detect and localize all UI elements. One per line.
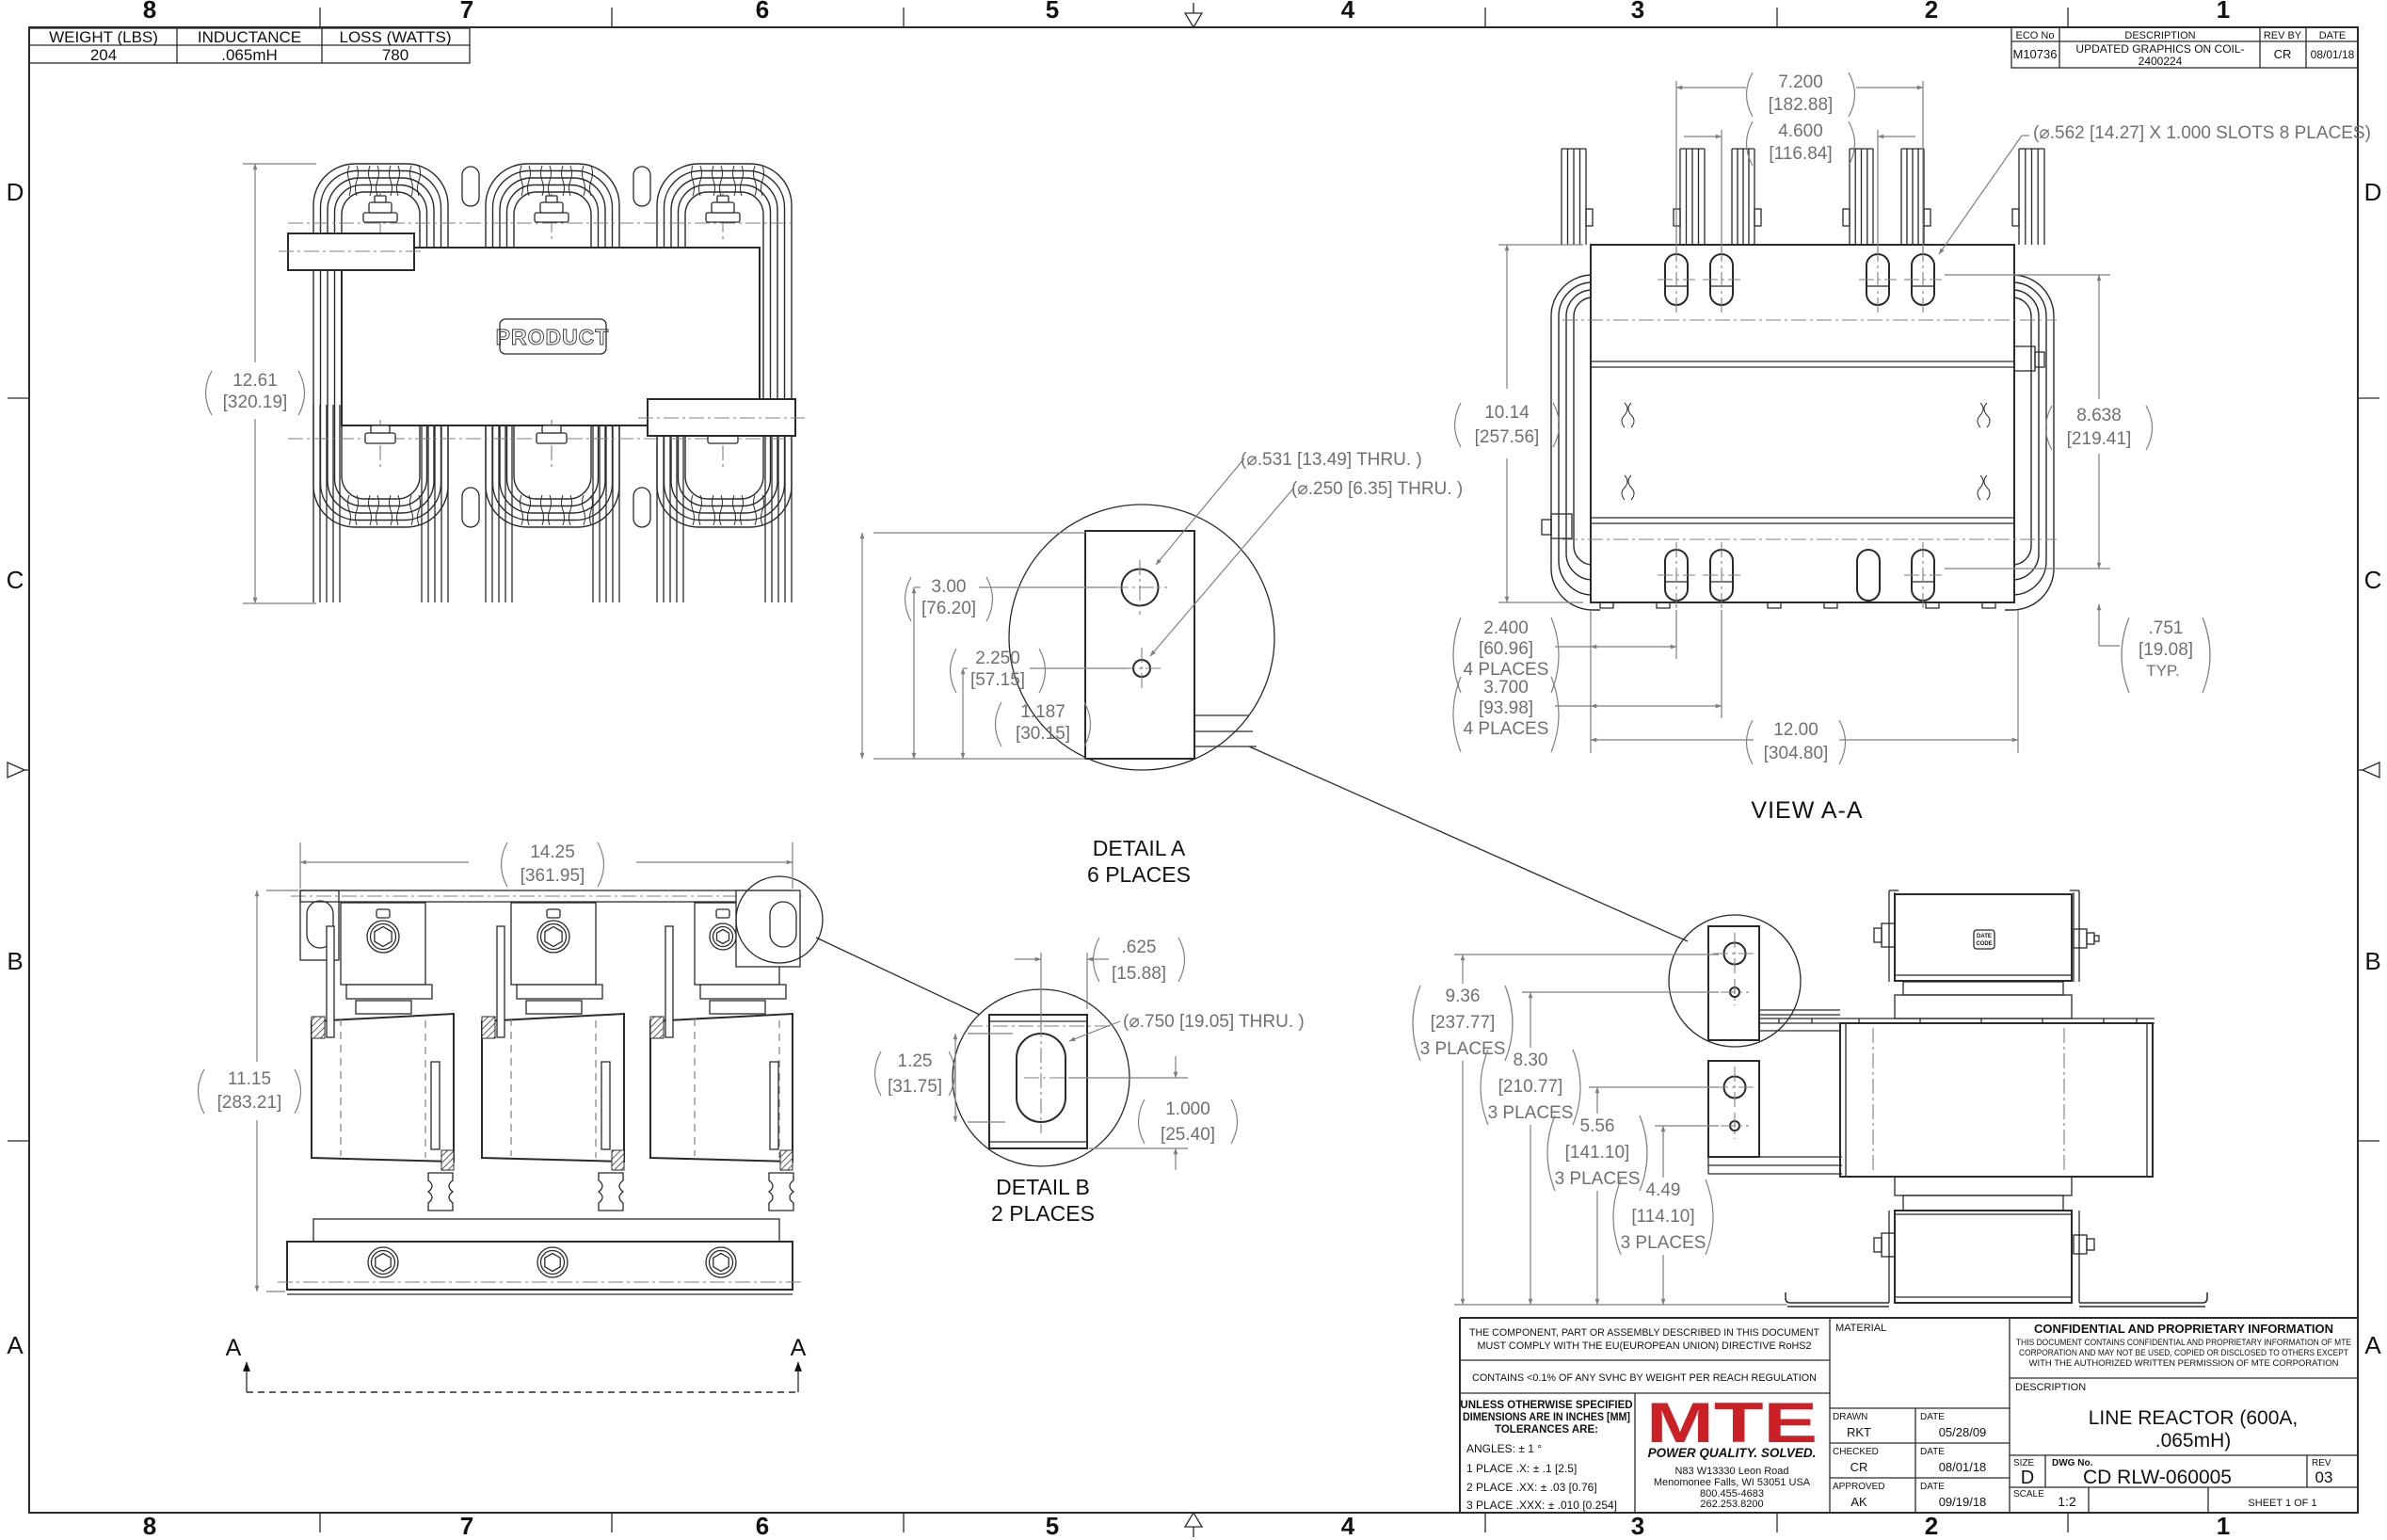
svg-text:09/19/18: 09/19/18 xyxy=(1939,1495,1987,1509)
svg-text:[76.20]: [76.20] xyxy=(921,599,976,618)
svg-text:ECO No: ECO No xyxy=(2016,30,2055,41)
svg-text:[237.77]: [237.77] xyxy=(1431,1013,1496,1033)
svg-text:(⌀.531 [13.49] THRU. ): (⌀.531 [13.49] THRU. ) xyxy=(1241,450,1422,470)
svg-text:CORPORATION AND MAY NOT BE USE: CORPORATION AND MAY NOT BE USED, COPIED … xyxy=(2019,1348,2348,1358)
svg-text:3: 3 xyxy=(1631,0,1644,24)
svg-text:N83 W13330 Leon Road: N83 W13330 Leon Road xyxy=(1674,1466,1788,1477)
svg-text:7.200: 7.200 xyxy=(1778,72,1823,92)
svg-text:[257.56]: [257.56] xyxy=(1475,427,1540,447)
svg-text:.625: .625 xyxy=(1122,938,1157,957)
svg-text:UNLESS OTHERWISE SPECIFIED: UNLESS OTHERWISE SPECIFIED xyxy=(1460,1400,1632,1411)
svg-text:AK: AK xyxy=(1850,1495,1867,1509)
svg-text:[219.41]: [219.41] xyxy=(2067,429,2132,449)
svg-text:[116.84]: [116.84] xyxy=(1769,144,1832,164)
svg-text:1 PLACE .X: ± .1 [2.5]: 1 PLACE .X: ± .1 [2.5] xyxy=(1466,1462,1577,1475)
svg-text:D: D xyxy=(7,178,24,206)
svg-text:DATE: DATE xyxy=(1920,1482,1945,1492)
svg-text:REV: REV xyxy=(2312,1458,2331,1468)
svg-text:1: 1 xyxy=(2217,0,2230,24)
svg-text:4: 4 xyxy=(1341,0,1355,24)
svg-text:8.30: 8.30 xyxy=(1514,1051,1548,1070)
svg-text:4 PLACES: 4 PLACES xyxy=(1464,719,1549,739)
svg-text:CR: CR xyxy=(1850,1460,1868,1474)
svg-text:6: 6 xyxy=(756,0,769,24)
svg-text:ANGLES: ± 1 °: ANGLES: ± 1 ° xyxy=(1466,1442,1542,1455)
svg-text:DESCRIPTION: DESCRIPTION xyxy=(2015,1382,2086,1393)
svg-text:A: A xyxy=(7,1331,24,1359)
svg-text:A: A xyxy=(226,1335,242,1361)
svg-text:LINE REACTOR (600A,: LINE REACTOR (600A, xyxy=(2089,1407,2299,1429)
svg-text:3 PLACE .XXX: ± .010 [0.254]: 3 PLACE .XXX: ± .010 [0.254] xyxy=(1466,1499,1617,1512)
svg-text:[93.98]: [93.98] xyxy=(1479,698,1533,718)
svg-text:1.000: 1.000 xyxy=(1165,1099,1210,1119)
svg-text:(⌀.562 [14.27] X 1.000 SLOTS: (⌀.562 [14.27] X 1.000 SLOTS 8 PLACES) xyxy=(2033,123,2371,143)
svg-text:[361.95]: [361.95] xyxy=(521,866,585,886)
svg-text:CR: CR xyxy=(2274,47,2292,61)
svg-text:05/28/09: 05/28/09 xyxy=(1939,1425,1987,1439)
svg-text:780: 780 xyxy=(382,46,409,64)
svg-text:4 PLACES: 4 PLACES xyxy=(1464,660,1549,680)
svg-text:M10736: M10736 xyxy=(2013,47,2058,61)
svg-text:DESCRIPTION: DESCRIPTION xyxy=(2124,30,2195,41)
svg-text:D: D xyxy=(2021,1468,2034,1488)
svg-text:7: 7 xyxy=(460,0,473,24)
svg-text:[60.96]: [60.96] xyxy=(1479,639,1533,659)
svg-text:DIMENSIONS ARE IN INCHES [MM]: DIMENSIONS ARE IN INCHES [MM] xyxy=(1463,1412,1630,1423)
svg-text:[30.15]: [30.15] xyxy=(1016,724,1070,744)
svg-text:THIS DOCUMENT CONTAINS CONFIDE: THIS DOCUMENT CONTAINS CONFIDENTIAL AND … xyxy=(2016,1338,2351,1348)
svg-text:A: A xyxy=(791,1335,807,1361)
svg-text:POWER QUALITY. SOLVED.: POWER QUALITY. SOLVED. xyxy=(1648,1446,1817,1460)
svg-text:2 PLACE .XX: ± .03 [0.76]: 2 PLACE .XX: ± .03 [0.76] xyxy=(1466,1481,1597,1494)
svg-text:(⌀.750 [19.05] THRU. ): (⌀.750 [19.05] THRU. ) xyxy=(1123,1012,1305,1032)
svg-text:C: C xyxy=(2364,566,2382,594)
svg-text:SCALE: SCALE xyxy=(2013,1489,2044,1500)
svg-text:3 PLACES: 3 PLACES xyxy=(1488,1103,1574,1123)
svg-text:[320.19]: [320.19] xyxy=(223,393,288,412)
svg-text:[141.10]: [141.10] xyxy=(1565,1143,1630,1163)
svg-text:5.56: 5.56 xyxy=(1580,1116,1615,1136)
svg-text:[210.77]: [210.77] xyxy=(1498,1077,1563,1097)
svg-text:DATE: DATE xyxy=(2319,30,2347,41)
svg-text:[25.40]: [25.40] xyxy=(1161,1125,1215,1145)
svg-text:[57.15]: [57.15] xyxy=(970,670,1025,690)
svg-text:8: 8 xyxy=(143,1512,156,1540)
svg-text:.065mH: .065mH xyxy=(221,46,278,64)
svg-text:TYP.: TYP. xyxy=(2146,662,2180,680)
svg-text:LOSS (WATTS): LOSS (WATTS) xyxy=(340,28,452,46)
svg-text:2: 2 xyxy=(1925,1512,1938,1540)
svg-text:DETAIL B: DETAIL B xyxy=(996,1175,1090,1199)
svg-text:10.14: 10.14 xyxy=(1484,403,1530,423)
svg-text:THE COMPONENT, PART OR ASSEMBL: THE COMPONENT, PART OR ASSEMBLY DESCRIBE… xyxy=(1469,1327,1819,1339)
svg-text:4.49: 4.49 xyxy=(1646,1180,1681,1200)
svg-text:APPROVED: APPROVED xyxy=(1833,1482,1885,1492)
svg-text:11.15: 11.15 xyxy=(228,1069,271,1089)
svg-text:REV BY: REV BY xyxy=(2264,30,2302,41)
svg-text:D: D xyxy=(2364,178,2382,206)
svg-text:MTE: MTE xyxy=(1646,1391,1818,1454)
svg-text:CD RLW-060005: CD RLW-060005 xyxy=(2083,1467,2232,1488)
svg-text:[182.88]: [182.88] xyxy=(1769,95,1834,115)
svg-text:12.61: 12.61 xyxy=(232,371,278,391)
svg-text:204: 204 xyxy=(90,46,117,64)
svg-text:.751: .751 xyxy=(2149,618,2184,638)
svg-text:CONTAINS <0.1% OF ANY SVHC BY: CONTAINS <0.1% OF ANY SVHC BY WEIGHT PER… xyxy=(1472,1372,1817,1384)
svg-text:CONFIDENTIAL AND PROPRIETARY I: CONFIDENTIAL AND PROPRIETARY INFORMATION xyxy=(2034,1322,2333,1336)
svg-text:3 PLACES: 3 PLACES xyxy=(1420,1039,1506,1059)
svg-text:DATE: DATE xyxy=(1977,934,1992,939)
svg-text:4: 4 xyxy=(1341,1512,1355,1540)
svg-text:VIEW A-A: VIEW A-A xyxy=(1751,797,1863,824)
svg-text:B: B xyxy=(2364,947,2380,975)
svg-text:MUST COMPLY WITH THE EU(EUROPE: MUST COMPLY WITH THE EU(EUROPEAN UNION) … xyxy=(1478,1340,1812,1352)
svg-text:5: 5 xyxy=(1046,0,1059,24)
svg-text:08/01/18: 08/01/18 xyxy=(1939,1460,1987,1474)
svg-text:DATE: DATE xyxy=(1920,1412,1945,1422)
svg-text:[283.21]: [283.21] xyxy=(217,1093,282,1113)
svg-text:3 PLACES: 3 PLACES xyxy=(1555,1169,1641,1189)
svg-text:3: 3 xyxy=(1631,1512,1644,1540)
svg-text:[19.08]: [19.08] xyxy=(2139,640,2193,660)
svg-text:4.600: 4.600 xyxy=(1778,121,1823,141)
svg-text:08/01/18: 08/01/18 xyxy=(2311,48,2355,61)
svg-text:PRODUCT: PRODUCT xyxy=(496,325,610,349)
svg-text:C: C xyxy=(7,566,24,594)
svg-text:UPDATED GRAPHICS ON COIL-: UPDATED GRAPHICS ON COIL- xyxy=(2075,42,2244,56)
svg-text:3 PLACES: 3 PLACES xyxy=(1621,1233,1706,1253)
svg-text:INDUCTANCE: INDUCTANCE xyxy=(198,28,301,46)
svg-text:WITH THE AUTHORIZED WRITTEN PE: WITH THE AUTHORIZED WRITTEN PERMISSION O… xyxy=(2029,1358,2339,1369)
svg-text:1.25: 1.25 xyxy=(898,1051,933,1071)
svg-text:1: 1 xyxy=(2217,1512,2230,1540)
svg-text:2.250: 2.250 xyxy=(975,649,1020,668)
svg-text:14.25: 14.25 xyxy=(530,842,575,862)
svg-text:1:2: 1:2 xyxy=(2058,1494,2076,1509)
svg-text:B: B xyxy=(7,947,23,975)
svg-text:[31.75]: [31.75] xyxy=(888,1077,942,1097)
svg-text:A: A xyxy=(2364,1331,2381,1359)
svg-text:DETAIL A: DETAIL A xyxy=(1093,836,1186,860)
svg-text:CODE: CODE xyxy=(1976,941,1992,947)
svg-text:CHECKED: CHECKED xyxy=(1833,1447,1879,1457)
svg-text:7: 7 xyxy=(460,1512,473,1540)
svg-text:TOLERANCES ARE:: TOLERANCES ARE: xyxy=(1495,1424,1598,1436)
svg-text:3.00: 3.00 xyxy=(932,577,967,597)
svg-text:6: 6 xyxy=(756,1512,769,1540)
svg-text:RKT: RKT xyxy=(1847,1425,1871,1439)
svg-text:DATE: DATE xyxy=(1920,1447,1945,1457)
svg-text:3.700: 3.700 xyxy=(1483,678,1529,698)
svg-text:262.253.8200: 262.253.8200 xyxy=(1700,1499,1763,1510)
svg-text:03: 03 xyxy=(2315,1468,2333,1486)
svg-text:8: 8 xyxy=(143,0,156,24)
svg-text:9.36: 9.36 xyxy=(1446,987,1481,1006)
svg-text:[304.80]: [304.80] xyxy=(1764,744,1829,763)
svg-text:2.400: 2.400 xyxy=(1483,618,1529,638)
svg-text:6 PLACES: 6 PLACES xyxy=(1087,862,1191,887)
svg-text:8.638: 8.638 xyxy=(2076,406,2122,425)
svg-text:Menomonee Falls, WI 53051 USA: Menomonee Falls, WI 53051 USA xyxy=(1654,1477,1811,1488)
svg-text:2 PLACES: 2 PLACES xyxy=(991,1201,1095,1226)
svg-text:[114.10]: [114.10] xyxy=(1631,1207,1694,1227)
svg-text:12.00: 12.00 xyxy=(1773,720,1818,740)
svg-text:2: 2 xyxy=(1925,0,1938,24)
svg-text:.065mH): .065mH) xyxy=(2155,1430,2232,1452)
svg-text:(⌀.250 [6.35] THRU. ): (⌀.250 [6.35] THRU. ) xyxy=(1291,479,1463,499)
svg-text:DRAWN: DRAWN xyxy=(1833,1412,1867,1422)
svg-text:MATERIAL: MATERIAL xyxy=(1835,1323,1886,1334)
svg-text:WEIGHT (LBS): WEIGHT (LBS) xyxy=(49,28,158,46)
svg-text:[15.88]: [15.88] xyxy=(1112,964,1166,984)
svg-text:2400224: 2400224 xyxy=(2139,55,2183,68)
svg-text:SHEET 1 OF 1: SHEET 1 OF 1 xyxy=(2248,1498,2316,1509)
svg-text:5: 5 xyxy=(1046,1512,1059,1540)
svg-text:1.187: 1.187 xyxy=(1020,702,1065,722)
